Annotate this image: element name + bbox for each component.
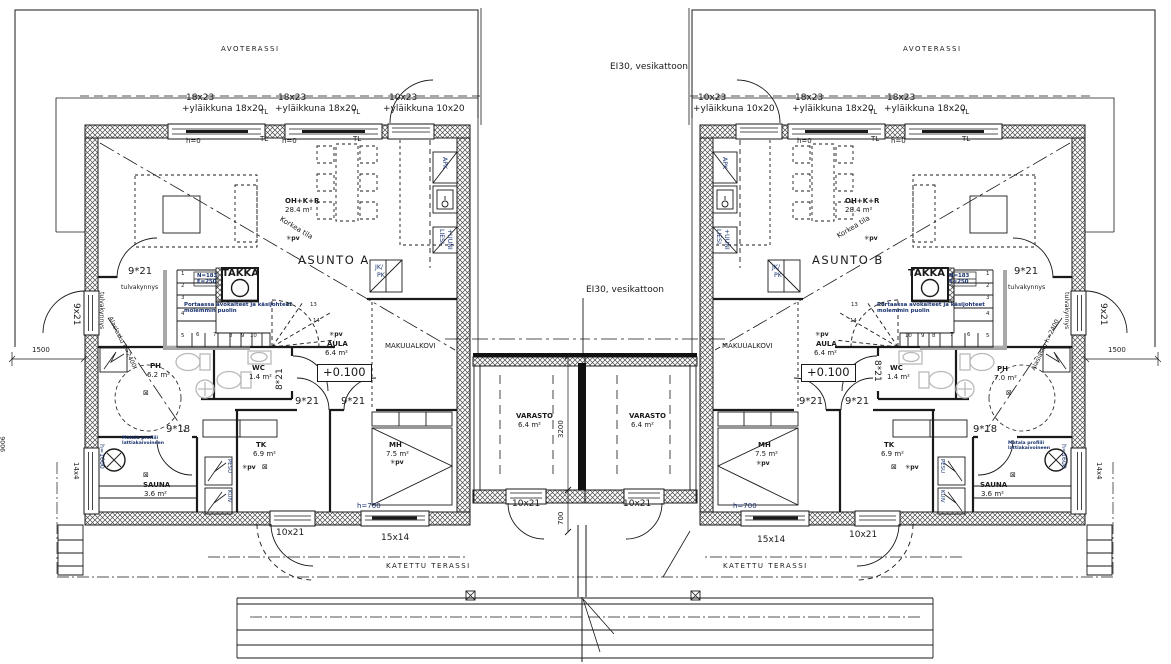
room-label-ph-b: PH <box>997 366 1008 373</box>
firewall-note-top: EI30, vesikattoon <box>610 63 688 72</box>
stair-num: 9 <box>921 334 924 339</box>
window-label-15x14-a: 15x14 <box>381 534 409 543</box>
room-area-ph-b: 7.0 m² <box>994 375 1017 382</box>
room-label-mh-a: MH <box>389 442 402 449</box>
sauna-window-height-b: h=1600 <box>1060 444 1066 469</box>
side-door-threshold-b: tulvakynnys <box>1063 292 1069 329</box>
stair-num: 3 <box>986 296 989 301</box>
window-sublabel: +yläikkuna 10x20 <box>383 105 465 114</box>
window-label: 18x23 <box>887 94 915 103</box>
room-area-varasto-a: 6.4 m² <box>518 422 541 429</box>
stair-num: 4 <box>986 312 989 317</box>
door-label-entry-b: 9*21 <box>1014 267 1038 277</box>
room-area-ph-a: 6.2 m² <box>147 372 170 379</box>
stair-num: 8 <box>229 334 232 339</box>
tl-mark: TL <box>352 109 360 116</box>
stair-num: 7 <box>213 333 216 338</box>
tl-mark: TL <box>961 109 969 116</box>
room-area-mh-b: 7.5 m² <box>755 451 778 458</box>
room-area-sauna-b: 3.6 m² <box>981 491 1004 498</box>
room-label-oh-b: OH+K+R <box>845 198 879 205</box>
partitions <box>98 277 457 512</box>
window-sublabel: +yläikkuna 10x20 <box>693 105 775 114</box>
room-label-tk-b: TK <box>884 442 894 449</box>
appliance-pk-a: PK <box>377 273 385 279</box>
stair-num: 5 <box>986 334 989 339</box>
room-area-oh-a: 28.4 m² <box>285 207 312 214</box>
stair-num: 4 <box>181 312 184 317</box>
lamp-icon: ⊠ <box>1006 390 1012 397</box>
sauna-door-label-b: 9*18 <box>973 425 997 435</box>
water-point-tk-b: ✳pv <box>905 465 919 471</box>
room-area-tk-a: 6.9 m² <box>253 451 276 458</box>
side-door-threshold-a: tulvakynnys <box>98 292 104 329</box>
room-area-aula-a: 6.4 m² <box>325 350 348 357</box>
stair-num: 7 <box>950 333 953 338</box>
room-label-ph-a: PH <box>150 363 161 370</box>
appliance-pesu-b: PESU <box>939 459 944 473</box>
door-label-b: 9*21 <box>845 397 869 407</box>
stair-num: 10 <box>250 334 257 339</box>
tl-mark: TL <box>353 136 361 143</box>
door-label-a: 9*21 <box>295 397 319 407</box>
tl-mark: TL <box>260 109 268 116</box>
window-label: 18x23 <box>795 94 823 103</box>
floorplan-linework <box>0 0 1171 664</box>
water-point-aula-b: ✳pv <box>815 332 829 338</box>
h0-mark: h=0 <box>186 138 201 145</box>
room-label-oh-a: OH+K+R <box>285 198 319 205</box>
dim-3200: 3200 <box>558 420 565 438</box>
appliance-pk-b: PK <box>774 273 782 279</box>
stair-num: 5 <box>181 334 184 339</box>
covered-terrace-label-b: KATETTU TERASSI <box>723 563 808 570</box>
stair-note-2-a: molemmin puolin <box>184 309 237 314</box>
unit-title-a: ASUNTO A <box>298 255 370 267</box>
h0-mark: h=0 <box>282 138 297 145</box>
h0-mark: h=0 <box>891 138 906 145</box>
room-area-wc-a: 1.4 m² <box>249 374 272 381</box>
stair-num: 1 <box>181 272 184 277</box>
floorplan-page: AVOTERASSI AVOTERASSI EI30, vesikattoon … <box>0 0 1171 664</box>
stair-num: 14 <box>850 319 857 324</box>
stair-num: 2 <box>986 284 989 289</box>
water-point-aula-a: ✳pv <box>329 332 343 338</box>
side-door-label-b: 9x21 <box>1098 303 1107 326</box>
appliance-kuiv-a: KUIV <box>226 490 231 503</box>
stair-num: 2 <box>181 284 184 289</box>
lamp-icon: ⊠ <box>891 464 897 471</box>
stair-num: 13 <box>310 303 317 308</box>
appliance-liesi-a: LIESI <box>438 229 444 244</box>
stair-num: 6 <box>967 333 970 338</box>
room-label-wc-a: WC <box>252 365 265 372</box>
room-label-aula-b: AULA <box>816 341 837 348</box>
room-label-tk-a: TK <box>256 442 266 449</box>
window-label: 18x23 <box>186 94 214 103</box>
dim-700: 700 <box>558 512 565 525</box>
appliance-pesu-a: PESU <box>226 459 231 473</box>
stair-num: 12 <box>286 303 293 308</box>
window-label: 18x23 <box>278 94 306 103</box>
lamp-icon: ⊠ <box>143 472 149 479</box>
firewall-note-mid: EI30, vesikattoon <box>586 286 664 295</box>
window-label: 10x23 <box>389 94 417 103</box>
h0-mark: h=0 <box>797 138 812 145</box>
stair-num: 8 <box>932 334 935 339</box>
room-label-varasto-b: VARASTO <box>629 413 666 420</box>
center-elements <box>466 298 700 662</box>
room-label-alcove-b: MAKUUALKOVI <box>722 343 773 350</box>
centerline-diagonals <box>100 143 585 432</box>
profile-note-2-b: lattiakaivoineen <box>1008 447 1050 452</box>
tl-mark: TL <box>869 109 877 116</box>
wc-door-label-b: 8*21 <box>872 360 881 382</box>
room-area-wc-b: 1.4 m² <box>887 374 910 381</box>
door-label-entry-a: 9*21 <box>128 267 152 277</box>
appliance-apk-b: APK <box>721 157 727 169</box>
terrace-door-label-b: 10x21 <box>849 531 877 540</box>
tl-mark: TL <box>871 136 879 143</box>
water-point-oh-b: ✳pv <box>864 236 878 242</box>
room-label-mh-b: MH <box>758 442 771 449</box>
flood-threshold-a: tulvakynnys <box>121 285 158 291</box>
window-sublabel: +yläikkuna 18x20 <box>182 105 264 114</box>
storage-door-label-a: 10x21 <box>512 500 540 509</box>
room-area-aula-b: 6.4 m² <box>814 350 837 357</box>
stair-num: 14 <box>313 319 320 324</box>
stair-num: 1 <box>986 272 989 277</box>
dim-1500-right: 1500 <box>1108 347 1126 354</box>
lamp-icon: ⊠ <box>262 464 268 471</box>
lamp-icon: ⊠ <box>143 390 149 397</box>
flood-threshold-b: tulvakynnys <box>1008 285 1045 291</box>
appliance-jk-b: JK/ <box>772 265 780 271</box>
room-area-sauna-a: 3.6 m² <box>144 491 167 498</box>
profile-note-2-a: lattiakaivoineen <box>122 442 164 447</box>
room-area-mh-a: 7.5 m² <box>386 451 409 458</box>
covered-terrace-label-a: KATETTU TERASSI <box>386 563 471 570</box>
window-label: 10x23 <box>698 94 726 103</box>
stair-num: 6 <box>196 333 199 338</box>
room-label-aula-a: AULA <box>327 341 348 348</box>
appliance-jk-a: JK/ <box>375 265 383 271</box>
tl-mark: TL <box>962 136 970 143</box>
dim-1500-left: 1500 <box>32 347 50 354</box>
stair-num: 9 <box>241 334 244 339</box>
fireplace-e-b: E=250 <box>949 280 968 285</box>
appliance-liesi-b: LIESI <box>715 229 721 244</box>
window-sublabel: +yläikkuna 18x20 <box>275 105 357 114</box>
water-point-mh-a: ✳pv <box>390 460 404 466</box>
stair-note-2-b: molemmin puolin <box>877 309 930 314</box>
level-mark-a: +0.100 <box>317 364 372 382</box>
appliance-uuni-b: +UUNI <box>723 229 729 250</box>
sauna-door-label-a: 9*18 <box>166 425 190 435</box>
fireplace-label-b: TAKKA <box>908 269 945 279</box>
sill-height-a: h=700 <box>357 503 381 510</box>
stair-num: 13 <box>851 303 858 308</box>
water-point-mh-b: ✳pv <box>756 461 770 467</box>
room-label-varasto-a: VARASTO <box>516 413 553 420</box>
stair-num: 3 <box>181 296 184 301</box>
side-door-label-a: 9x21 <box>71 303 80 326</box>
water-point-oh-a: ✳pv <box>286 236 300 242</box>
window-label-14x4-a: 14x4 <box>72 462 79 480</box>
terrace-door-label-a: 10x21 <box>276 529 304 538</box>
tl-mark: TL <box>260 136 268 143</box>
exterior-walls <box>85 125 585 525</box>
window-sublabel: +yläikkuna 18x20 <box>792 105 874 114</box>
water-point-tk-a: ✳pv <box>242 465 256 471</box>
room-area-oh-b: 28.4 m² <box>845 207 872 214</box>
unit-title-b: ASUNTO B <box>812 255 884 267</box>
fireplace-e-a: E=250 <box>197 280 216 285</box>
terrace-label-a: AVOTERASSI <box>221 46 280 53</box>
appliance-uuni-a: +UUNI <box>446 229 452 250</box>
window-sublabel: +yläikkuna 18x20 <box>884 105 966 114</box>
room-label-sauna-a: SAUNA <box>143 482 170 489</box>
room-label-wc-b: WC <box>890 365 903 372</box>
fireplace-label-a: TAKKA <box>222 269 259 279</box>
wc-door-label-a: 8*21 <box>276 368 285 390</box>
appliance-apk-a: APK <box>441 157 447 169</box>
room-area-tk-b: 6.9 m² <box>881 451 904 458</box>
sill-height-b: h=700 <box>733 503 757 510</box>
level-mark-b: +0.100 <box>801 364 856 382</box>
storage-door-label-b: 10x21 <box>623 500 651 509</box>
window-label-15x14-b: 15x14 <box>757 536 785 545</box>
room-label-sauna-b: SAUNA <box>980 482 1007 489</box>
room-area-varasto-b: 6.4 m² <box>631 422 654 429</box>
stair-num: 12 <box>878 303 885 308</box>
stair-num: 10 <box>905 334 912 339</box>
lamp-icon: ⊠ <box>1010 472 1016 479</box>
door-label-b: 9*21 <box>799 397 823 407</box>
terrace-label-b: AVOTERASSI <box>903 46 962 53</box>
door-label-a: 9*21 <box>341 397 365 407</box>
sauna-window-height-a: h=1600 <box>98 444 104 469</box>
window-label-14x4-b: 14x4 <box>1095 462 1102 480</box>
dim-side: 9006 <box>1 436 7 452</box>
appliance-kuiv-b: KUIV <box>939 490 944 503</box>
window-openings <box>84 124 546 526</box>
room-label-alcove-a: MAKUUALKOVI <box>385 343 436 350</box>
